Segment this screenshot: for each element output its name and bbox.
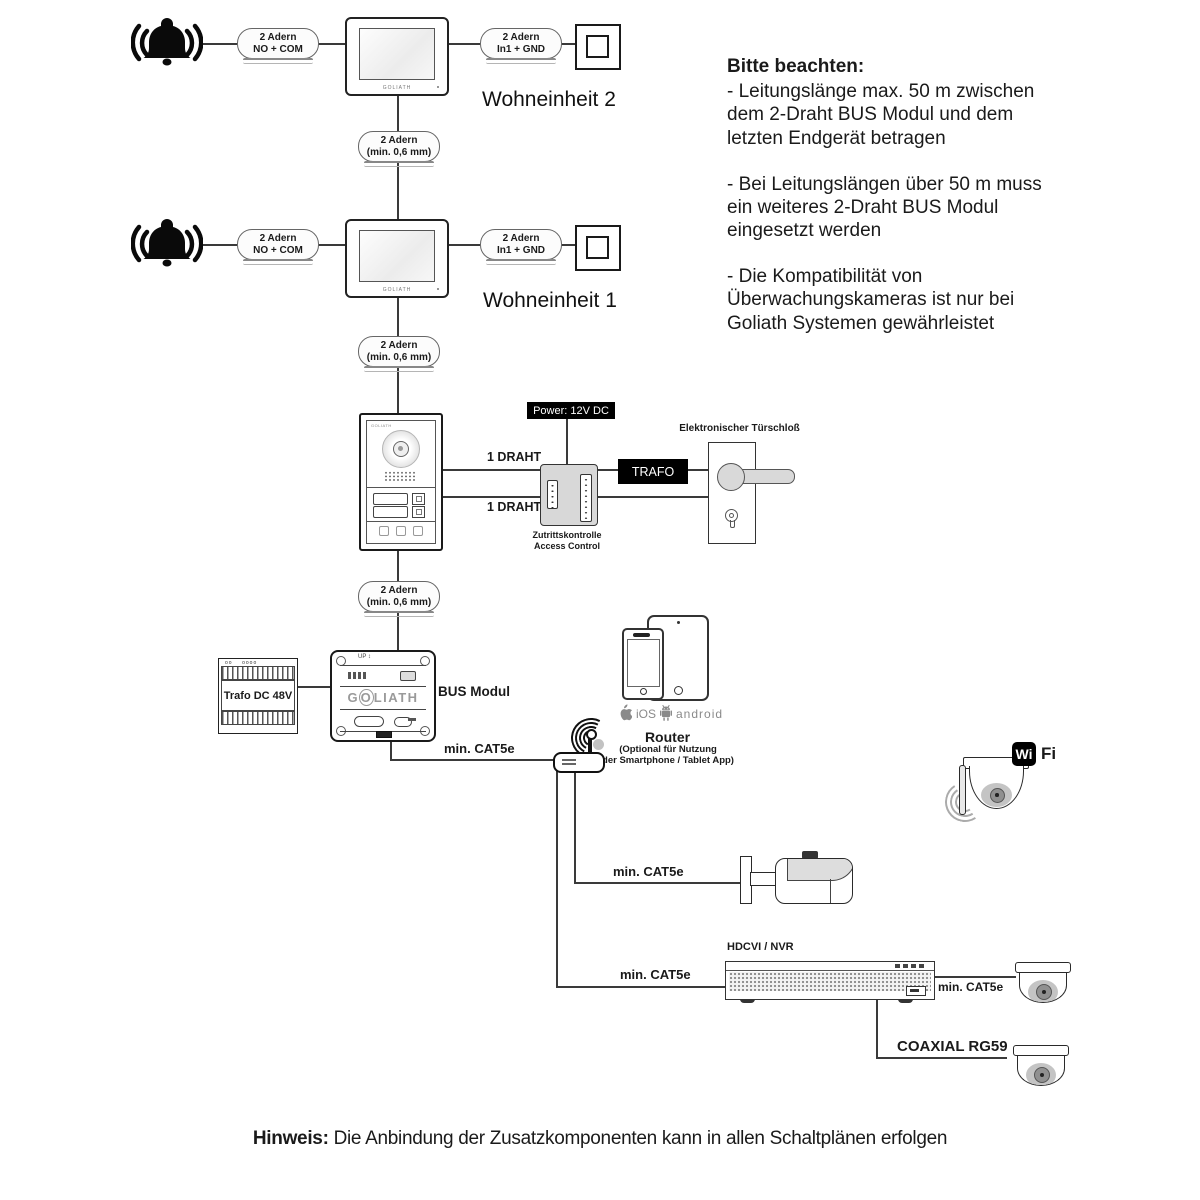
heatsink-fins <box>221 666 295 680</box>
wire <box>445 244 480 246</box>
call-button <box>412 493 425 505</box>
wire <box>560 244 575 246</box>
phone-icon <box>379 526 389 536</box>
goliath-logo: GOLIATH <box>332 690 434 705</box>
door-station: GOLIATH <box>359 413 443 551</box>
terminal-strip <box>547 480 558 509</box>
wall-button <box>575 225 621 271</box>
wire <box>397 294 399 336</box>
camera-dot <box>1040 1073 1044 1077</box>
wire-label-cat5e: min. CAT5e <box>444 741 515 756</box>
router <box>553 752 605 773</box>
terminal-pin <box>363 672 366 679</box>
wire-label-in1-gnd: 2 Adern In1 + GND <box>480 229 562 260</box>
nvr-label: HDCVI / NVR <box>727 941 794 953</box>
indoor-monitor: GOLIATH <box>345 17 449 96</box>
notes-title: Bitte beachten: <box>727 55 1067 78</box>
wire-label-1draht: 1 DRAHT <box>487 450 541 464</box>
bus-modul: UP ↕ GOLIATH <box>330 650 436 742</box>
router-opt-line1: (Optional für Nutzung <box>619 744 717 755</box>
wire <box>397 92 399 131</box>
up-text: UP <box>358 654 366 660</box>
door-camera-lens <box>393 441 409 457</box>
wire <box>439 496 540 498</box>
wire-label-coaxial: COAXIAL RG59 <box>897 1038 1008 1055</box>
speaker-grille <box>384 471 416 482</box>
nvr-usb-port <box>906 986 926 996</box>
dome-camera <box>1014 962 1072 1003</box>
pill-line2: NO + COM <box>253 245 303 257</box>
access-control <box>540 464 598 526</box>
footer-text: Die Anbindung der Zusatzkomponenten kann… <box>329 1128 948 1149</box>
sun-shield <box>787 858 853 881</box>
port <box>354 716 384 727</box>
camera-dome <box>1017 1055 1065 1086</box>
pill-line1: 2 Adern <box>260 233 297 245</box>
terminal-pin <box>358 672 361 679</box>
wire <box>397 547 399 581</box>
wifi-badge: Wi <box>1012 742 1036 766</box>
wall-button-inner <box>586 236 609 259</box>
door-station-panel: GOLIATH <box>366 420 436 544</box>
android-label: android <box>676 707 723 721</box>
wire-label-in1-gnd: 2 Adern In1 + GND <box>480 28 562 59</box>
tablet-camera <box>677 621 680 624</box>
port-pin <box>408 718 416 721</box>
indoor-monitor: GOLIATH <box>345 219 449 298</box>
mic-hole <box>437 288 439 290</box>
wire-label-no-com: 2 Adern NO + COM <box>237 28 319 59</box>
wire <box>574 769 576 884</box>
router-optional-note: (Optional für Nutzung der Smartphone / T… <box>593 744 743 767</box>
electronic-door-lock <box>708 442 756 544</box>
camera-base <box>1013 1045 1069 1056</box>
phone-icon <box>396 526 406 536</box>
note-item: - Bei Leitungslängen über 50 m muss ein … <box>727 173 1067 243</box>
wire-label-min06: 2 Adern (min. 0,6 mm) <box>358 336 440 367</box>
phone-speaker <box>633 633 650 637</box>
goliath-logo: GOLIATH <box>371 423 392 428</box>
nameplate <box>373 493 408 505</box>
wire <box>596 469 618 471</box>
unit-1-label: Wohneinheit 1 <box>483 289 617 313</box>
camera-dot <box>995 793 999 797</box>
wire <box>566 419 568 464</box>
doorbell-icon <box>131 11 203 77</box>
connector-port <box>400 671 416 681</box>
wall-button-inner <box>586 35 609 58</box>
camera-body <box>775 858 853 904</box>
wire-label-cat5e: min. CAT5e <box>613 864 684 879</box>
wire <box>556 986 725 988</box>
doorbell-icon <box>131 212 203 278</box>
wire <box>439 469 540 471</box>
door-camera-iris <box>398 446 403 451</box>
trafo-box-text: TRAFO <box>632 465 674 479</box>
wire <box>876 1057 1007 1059</box>
note-item: - Leitungslänge max. 50 m zwischen dem 2… <box>727 80 1067 150</box>
wire-label-min06: 2 Adern (min. 0,6 mm) <box>358 581 440 612</box>
nameplate <box>373 506 408 518</box>
wall-button <box>575 24 621 70</box>
wire <box>317 244 345 246</box>
bullet-camera <box>740 848 855 908</box>
divider <box>367 521 435 522</box>
lock-label: Elektronischer Türschloß <box>667 423 812 434</box>
vent <box>562 759 576 761</box>
camera-dome <box>1019 972 1067 1003</box>
sd-slot <box>376 731 392 738</box>
wire <box>560 43 575 45</box>
power-label: Power: 12V DC <box>527 402 615 419</box>
trafo-box: TRAFO <box>618 459 688 484</box>
caption-line2: Access Control <box>534 541 600 551</box>
caption-line1: Zutrittskontrolle <box>533 530 602 540</box>
smartphone <box>622 628 664 700</box>
trafo48-text: Trafo DC 48V <box>224 690 292 702</box>
wiring-diagram: 2 Adern NO + COM GOLIATH 2 Adern In1 + G… <box>0 0 1200 1200</box>
pill-line2: (min. 0,6 mm) <box>367 597 431 609</box>
goliath-logo: GOLIATH <box>347 287 447 293</box>
pill-line1: 2 Adern <box>503 233 540 245</box>
keyhole-stem <box>730 520 735 528</box>
wire <box>397 367 399 413</box>
pill-line2: (min. 0,6 mm) <box>367 147 431 159</box>
pill-line1: 2 Adern <box>381 585 418 597</box>
camera-antenna <box>959 765 966 815</box>
footer-bold: Hinweis: <box>253 1128 329 1149</box>
antenna-base <box>593 739 604 750</box>
wifi-wi-text: Wi <box>1016 746 1033 762</box>
pill-line2: In1 + GND <box>497 245 545 257</box>
wire <box>596 496 708 498</box>
wire <box>397 612 399 650</box>
monitor-screen <box>359 230 435 282</box>
mic-hole <box>437 86 439 88</box>
camera-base <box>1015 962 1071 973</box>
router-label: Router <box>605 729 730 745</box>
bus-modul-label: BUS Modul <box>438 684 510 699</box>
android-icon <box>658 703 674 722</box>
wire <box>390 759 555 761</box>
dome-camera <box>1012 1045 1070 1086</box>
tablet-home-button <box>674 686 683 695</box>
wire <box>556 769 558 988</box>
nvr-led <box>903 964 908 968</box>
wire <box>203 43 237 45</box>
pill-line1: 2 Adern <box>503 32 540 44</box>
pill-line2: (min. 0,6 mm) <box>367 352 431 364</box>
pill-line1: 2 Adern <box>381 135 418 147</box>
wire <box>445 43 480 45</box>
apple-icon <box>617 703 632 721</box>
nvr-led <box>911 964 916 968</box>
nvr-mesh <box>729 972 931 991</box>
access-control-caption: Zutrittskontrolle Access Control <box>517 530 617 553</box>
nvr-led <box>895 964 900 968</box>
footer-note: Hinweis: Die Anbindung der Zusatzkompone… <box>0 1128 1200 1150</box>
wire <box>203 244 237 246</box>
wire <box>296 686 330 688</box>
ios-label: iOS <box>636 707 656 721</box>
camera-arm <box>750 872 777 886</box>
terminal-row <box>340 665 426 687</box>
phone-home-button <box>640 688 647 695</box>
call-button <box>412 506 425 518</box>
key-icon <box>413 526 423 536</box>
pill-line1: 2 Adern <box>260 32 297 44</box>
door-handle <box>717 463 745 491</box>
router-opt-line2: der Smartphone / Tablet App) <box>602 755 734 766</box>
port-row <box>340 709 426 732</box>
wire-label-cat5e: min. CAT5e <box>938 980 1003 994</box>
lens-divider <box>830 879 831 903</box>
divider <box>367 487 435 488</box>
wire <box>397 162 399 219</box>
unit-2-label: Wohneinheit 2 <box>482 88 616 112</box>
terminal-strip <box>580 474 592 522</box>
bus-up-label: UP ↕ <box>358 654 371 660</box>
wire-label-1draht: 1 DRAHT <box>487 500 541 514</box>
wire <box>574 882 742 884</box>
wire-label-cat5e: min. CAT5e <box>620 967 691 982</box>
router-antenna-tip <box>586 729 597 740</box>
wire <box>688 469 708 471</box>
goliath-logo: GOLIATH <box>347 85 447 91</box>
wire <box>317 43 345 45</box>
wire <box>876 998 878 1059</box>
camera-dot <box>1042 990 1046 994</box>
nvr-recorder <box>725 961 935 1000</box>
wire-label-min06: 2 Adern (min. 0,6 mm) <box>358 131 440 162</box>
power-label-text: Power: 12V DC <box>533 405 609 417</box>
monitor-screen <box>359 28 435 80</box>
notes-block: Bitte beachten: - Leitungslänge max. 50 … <box>727 55 1067 358</box>
vent <box>562 763 576 765</box>
terminal-pin <box>348 672 351 679</box>
pill-line1: 2 Adern <box>381 340 418 352</box>
heatsink-fins <box>221 711 295 725</box>
wifi-fi-text: Fi <box>1041 744 1056 764</box>
trafo-dc-48v: oo oooo Trafo DC 48V <box>218 658 298 734</box>
nvr-led <box>919 964 924 968</box>
terminal-pin <box>353 672 356 679</box>
phone-screen <box>627 639 660 687</box>
trafo48-label: Trafo DC 48V <box>221 680 295 711</box>
wire-label-no-com: 2 Adern NO + COM <box>237 229 319 260</box>
wire <box>933 976 1016 978</box>
pill-line2: In1 + GND <box>497 44 545 56</box>
pill-line2: NO + COM <box>253 44 303 56</box>
note-item: - Die Kompatibilität von Überwachungskam… <box>727 265 1067 335</box>
door-camera <box>382 430 420 468</box>
